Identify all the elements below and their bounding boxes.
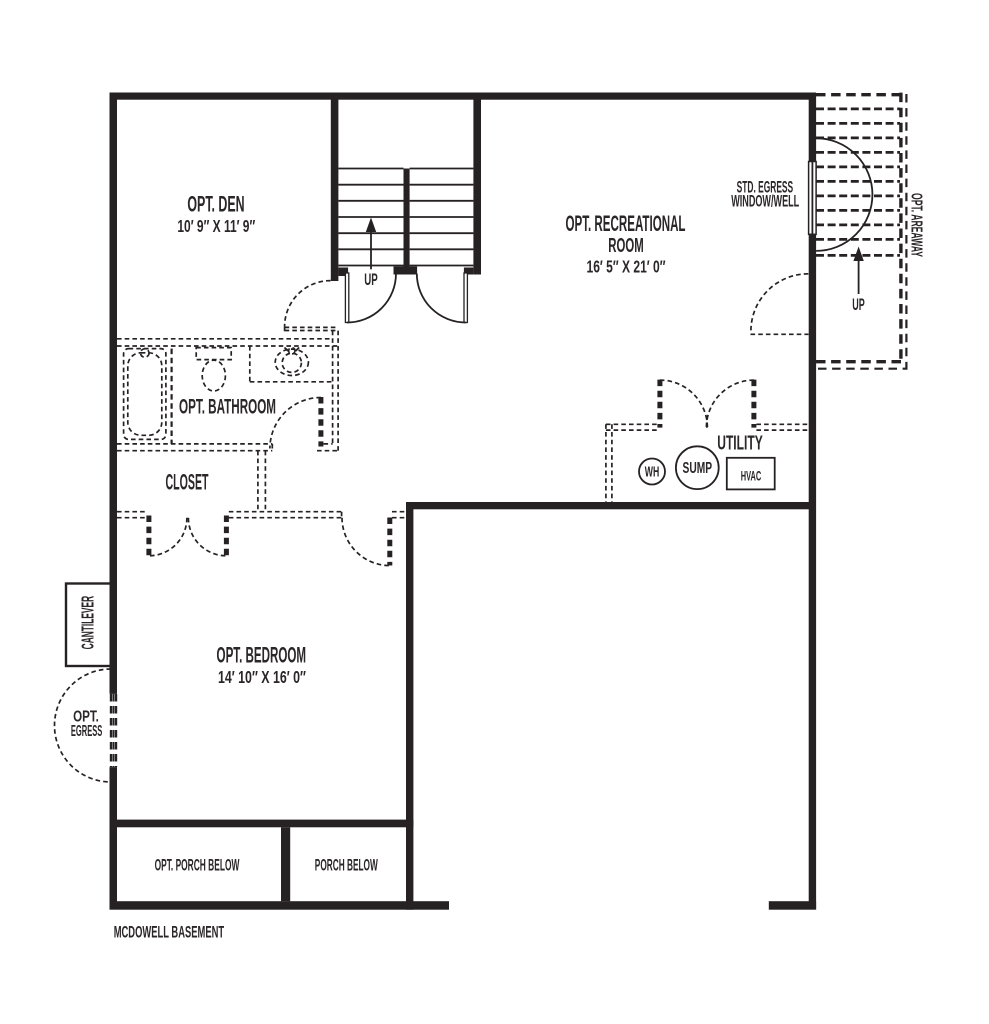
svg-text:UTILITY: UTILITY (717, 433, 763, 455)
svg-text:WH: WH (645, 465, 660, 481)
svg-text:OPT. RECREATIONAL: OPT. RECREATIONAL (566, 211, 686, 236)
svg-text:16′ 5″ X 21′ 0″: 16′ 5″ X 21′ 0″ (587, 257, 666, 277)
svg-text:MCDOWELL BASEMENT: MCDOWELL BASEMENT (114, 923, 225, 942)
svg-text:PORCH BELOW: PORCH BELOW (315, 856, 378, 875)
svg-text:CANTILEVER: CANTILEVER (79, 596, 98, 650)
svg-text:HVAC: HVAC (741, 469, 762, 484)
svg-text:OPT. PORCH BELOW: OPT. PORCH BELOW (155, 856, 240, 875)
svg-text:CLOSET: CLOSET (166, 470, 209, 495)
svg-text:EGRESS: EGRESS (71, 723, 102, 740)
svg-text:OPT. AREAWAY: OPT. AREAWAY (908, 193, 925, 257)
svg-text:SUMP: SUMP (683, 460, 713, 477)
svg-text:ROOM: ROOM (608, 234, 643, 257)
svg-text:10′ 9″ X 11′ 9″: 10′ 9″ X 11′ 9″ (177, 216, 255, 236)
svg-text:OPT. BATHROOM: OPT. BATHROOM (179, 396, 276, 419)
svg-text:OPT. BEDROOM: OPT. BEDROOM (217, 643, 307, 668)
svg-text:WINDOW/WELL: WINDOW/WELL (731, 193, 799, 211)
svg-text:14′ 10″ X 16′ 0″: 14′ 10″ X 16′ 0″ (218, 667, 306, 687)
svg-text:OPT. DEN: OPT. DEN (187, 192, 244, 217)
svg-text:UP: UP (852, 296, 865, 314)
svg-text:UP: UP (364, 271, 378, 289)
